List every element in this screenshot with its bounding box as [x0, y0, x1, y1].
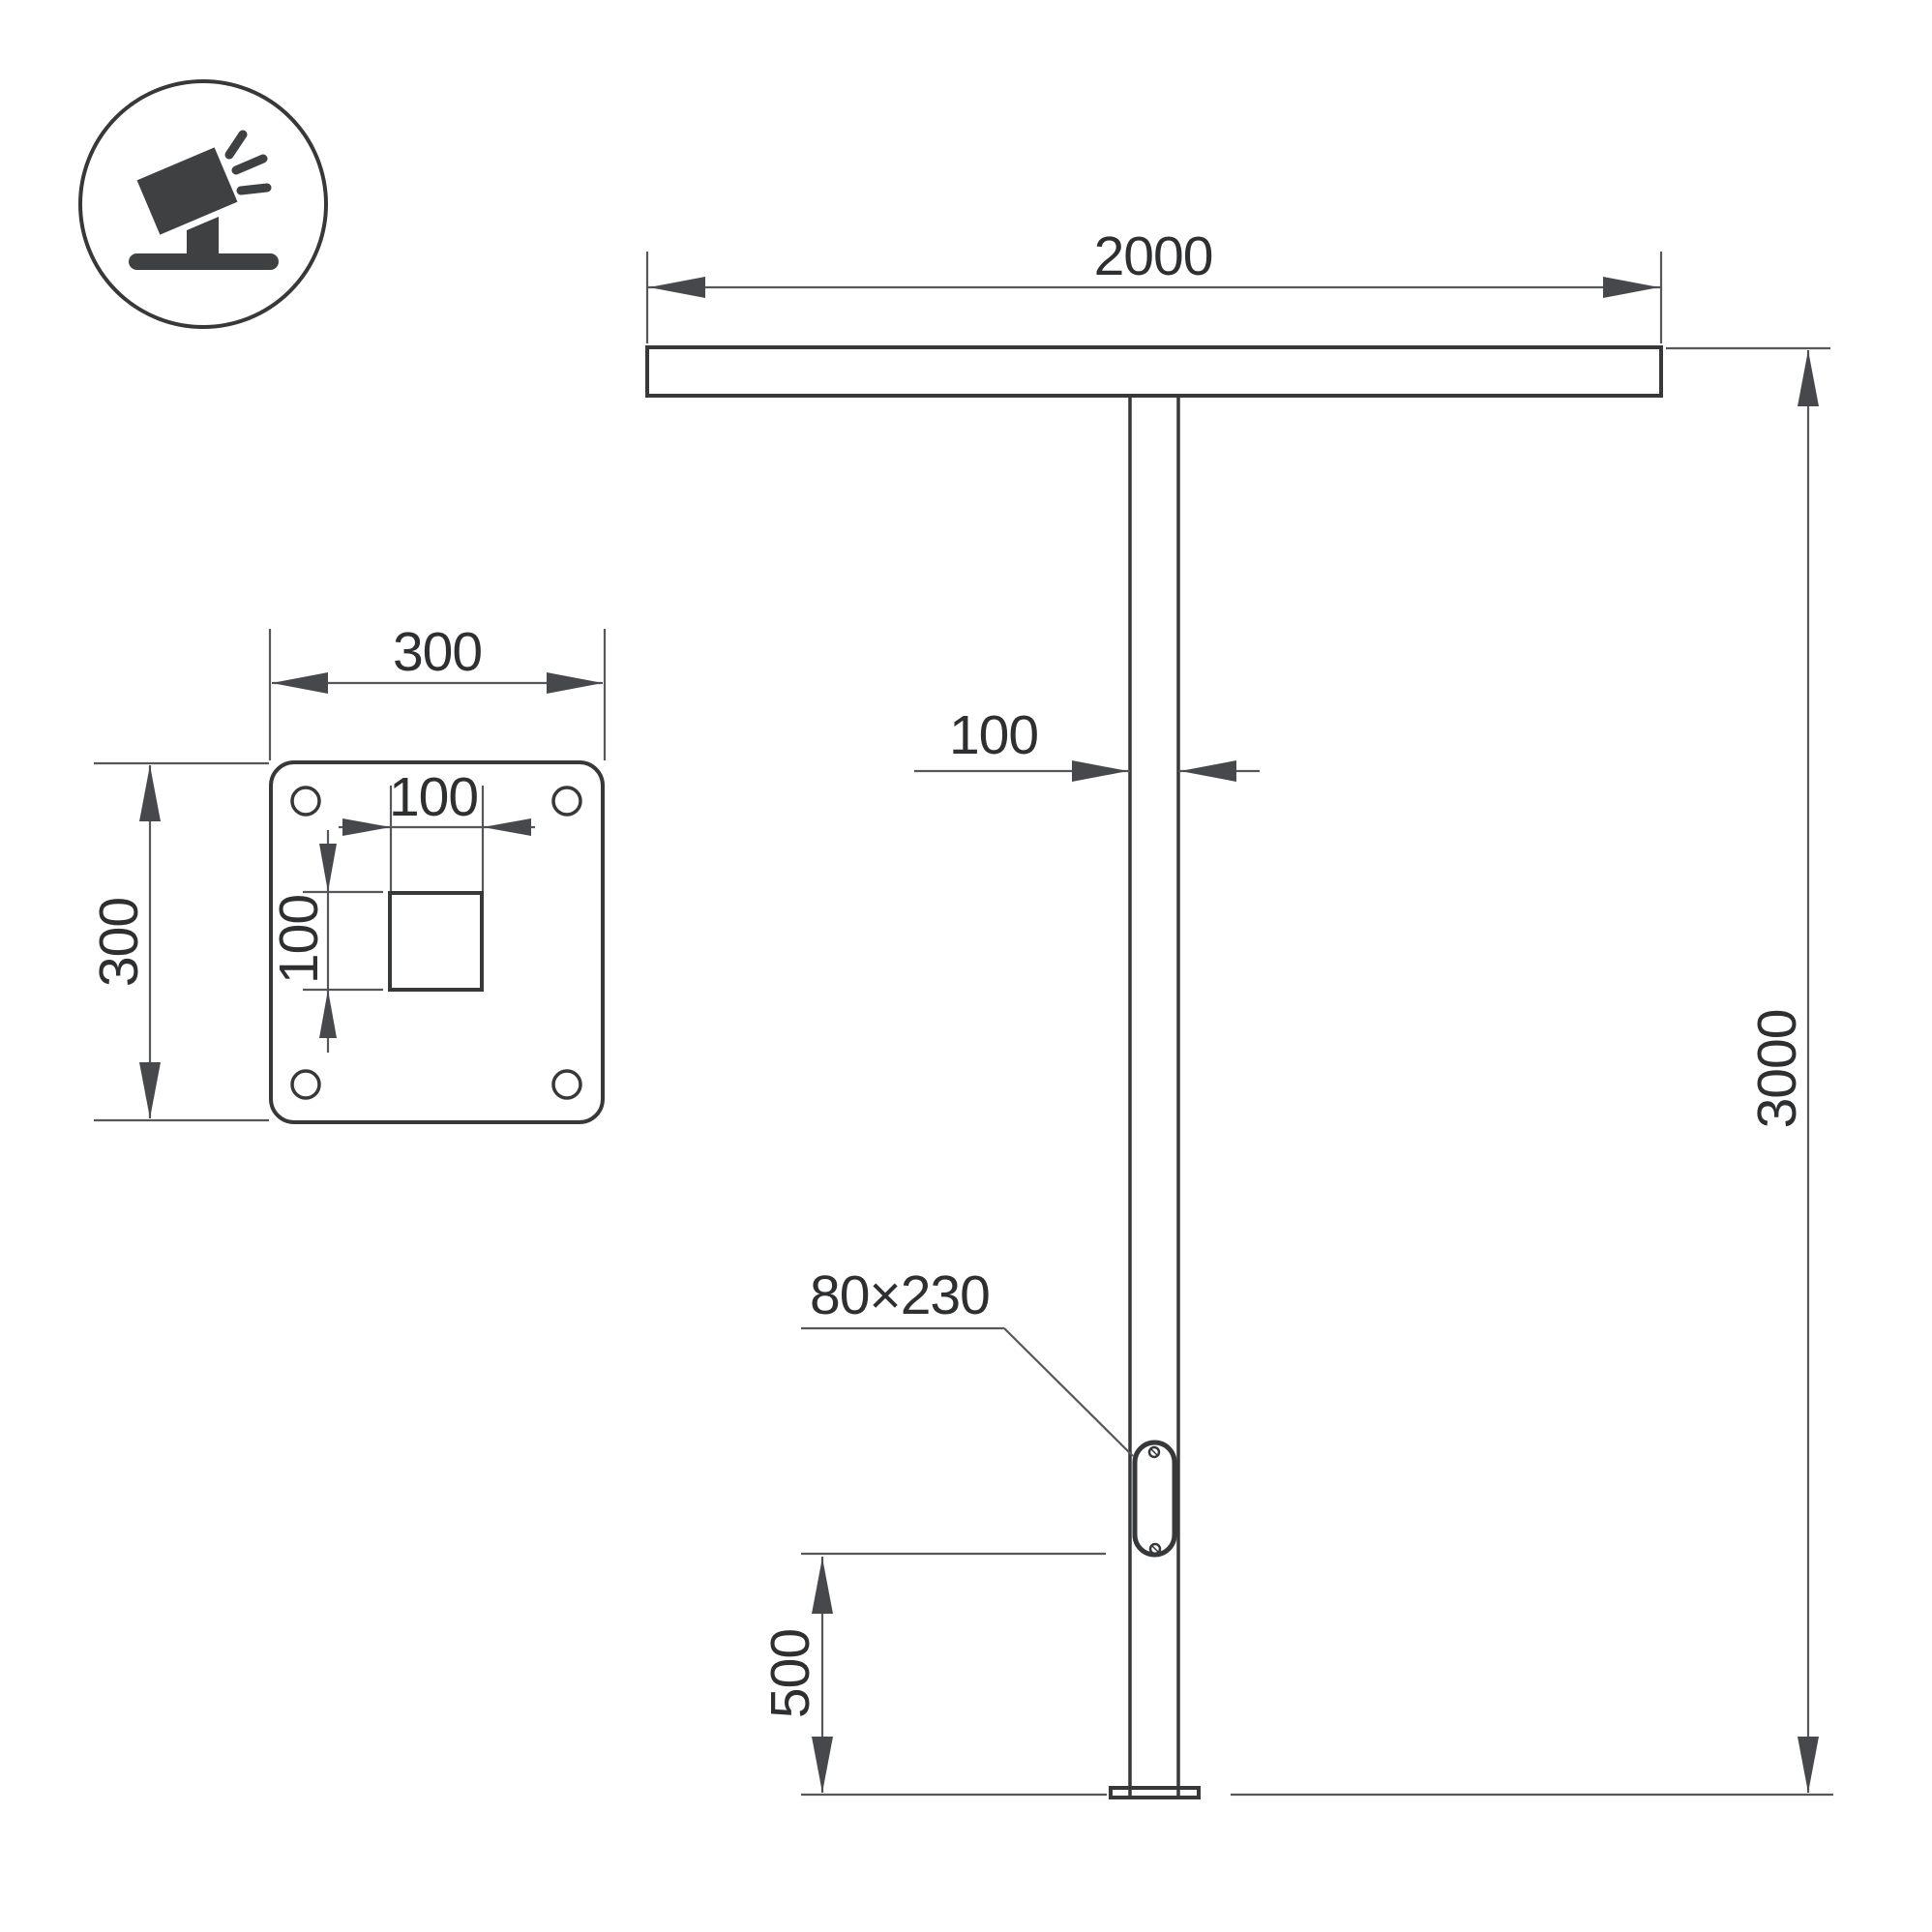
- dim-label-plate-width: 300: [393, 621, 482, 683]
- drawing-page: 2000 3000 100 500 80×230: [0, 0, 1932, 1932]
- bolt-hole-bottom-right: [553, 1071, 580, 1098]
- dim-label-crossbar-width: 2000: [1094, 225, 1213, 287]
- foot-plate: [1111, 1788, 1199, 1798]
- bolt-hole-top-left: [292, 788, 319, 815]
- leader-line: [1004, 1328, 1133, 1456]
- dim-label-handhole-size: 80×230: [810, 1264, 990, 1326]
- light-ray-top: [229, 134, 243, 155]
- dim-pole-width: 100: [914, 704, 1260, 782]
- arrowhead-right: [1603, 277, 1659, 298]
- dim-slot-width: 100: [339, 766, 535, 891]
- light-ray-bottom: [241, 188, 267, 191]
- light-rays-icon: [229, 134, 267, 191]
- dim-slot-height: 100: [268, 830, 383, 1053]
- arrowhead-top: [812, 1558, 833, 1614]
- arrowhead-left: [1072, 760, 1128, 782]
- dim-label-slot-width: 100: [389, 766, 478, 828]
- dim-label-pole-height: 3000: [1746, 1010, 1808, 1129]
- arrowhead-bottom: [812, 1737, 833, 1793]
- floodlight-base: [129, 253, 279, 270]
- dim-label-slot-height: 100: [268, 895, 330, 984]
- dim-crossbar-width: 2000: [647, 225, 1661, 343]
- dim-handhole-height: 500: [759, 1554, 1106, 1793]
- screw-slot-bottom: [1152, 1546, 1158, 1552]
- arrowhead-top: [1798, 350, 1819, 406]
- bolt-hole-top-right: [553, 788, 580, 815]
- arrowhead-top: [139, 765, 161, 821]
- arrowhead-left: [649, 277, 705, 298]
- center-square-slot: [390, 893, 482, 990]
- bolt-hole-bottom-left: [292, 1071, 319, 1098]
- arrowhead-right: [483, 818, 531, 836]
- floodlight-icon: [129, 134, 279, 270]
- arrowhead-bottom: [139, 1062, 161, 1118]
- dim-label-plate-height: 300: [88, 898, 150, 987]
- arrowhead-right: [547, 672, 603, 694]
- dim-plate-width: 300: [270, 621, 605, 760]
- handhole-callout: 80×230: [801, 1264, 1133, 1456]
- floodlight-stem: [187, 217, 219, 254]
- screw-slot-top: [1151, 1449, 1157, 1455]
- arrowhead-bottom: [1798, 1737, 1819, 1793]
- handhole-cover: [1135, 1442, 1174, 1555]
- floodlight-badge: [80, 81, 326, 327]
- arrowhead-left: [272, 672, 328, 694]
- arrowhead-left: [342, 818, 391, 836]
- technical-drawing-canvas: 2000 3000 100 500 80×230: [0, 0, 1932, 1932]
- arrowhead-bottom: [319, 990, 337, 1038]
- light-ray-middle: [236, 159, 263, 170]
- arrowhead-right: [1180, 760, 1236, 782]
- crossbar: [647, 347, 1661, 396]
- dim-label-handhole-height: 500: [759, 1629, 821, 1718]
- dim-plate-height: 300: [88, 763, 269, 1120]
- dim-pole-height: 3000: [1666, 348, 1830, 1793]
- arrowhead-top: [319, 844, 337, 892]
- floodlight-head: [137, 147, 238, 234]
- dim-label-pole-width: 100: [949, 704, 1038, 766]
